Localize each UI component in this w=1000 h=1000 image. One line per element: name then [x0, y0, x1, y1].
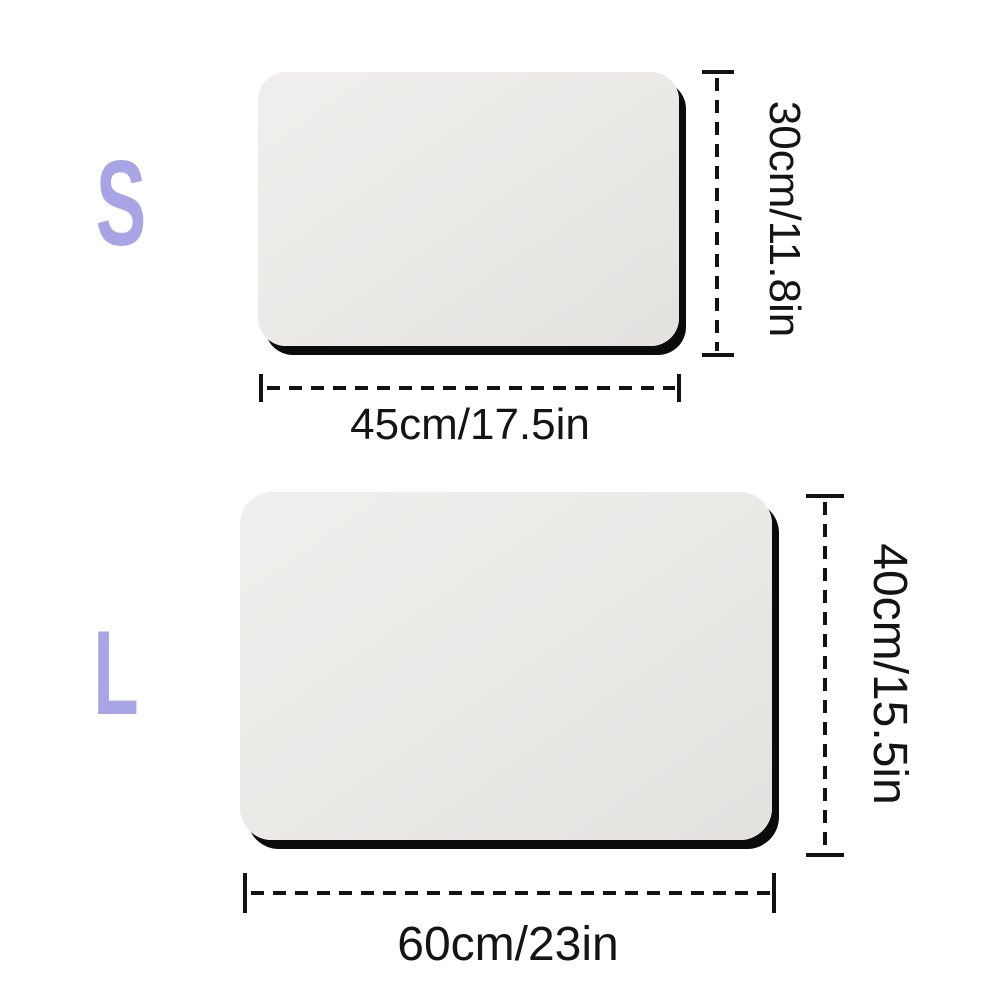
- dimension-tick-large-width-right: [772, 873, 776, 913]
- dimension-tick-small-height-top: [702, 70, 734, 74]
- dimension-tick-small-width-right: [677, 374, 681, 402]
- dimension-label-small-width: 45cm/17.5in: [350, 403, 590, 447]
- dimension-line-small-width: [267, 386, 675, 390]
- dimension-line-small-height: [715, 78, 719, 351]
- dimension-tick-small-height-bottom: [702, 353, 734, 357]
- dimension-tick-large-width-left: [243, 873, 247, 913]
- size-label-large: L: [93, 613, 138, 733]
- mat-large: [240, 492, 772, 840]
- dimension-label-large-width: 60cm/23in: [397, 921, 618, 969]
- dimension-tick-large-height-top: [806, 494, 844, 498]
- size-diagram: S 30cm/11.8in 45cm/17.5in L 40cm/15.5in …: [0, 0, 1000, 1000]
- dimension-tick-large-height-bottom: [806, 853, 844, 857]
- dimension-tick-small-width-left: [259, 374, 263, 402]
- mat-small: [258, 72, 679, 346]
- size-label-small: S: [96, 142, 146, 264]
- dimension-label-large-height: 40cm/15.5in: [865, 543, 913, 805]
- dimension-line-large-width: [251, 891, 770, 895]
- dimension-label-small-height: 30cm/11.8in: [762, 101, 806, 337]
- dimension-line-large-height: [823, 502, 827, 851]
